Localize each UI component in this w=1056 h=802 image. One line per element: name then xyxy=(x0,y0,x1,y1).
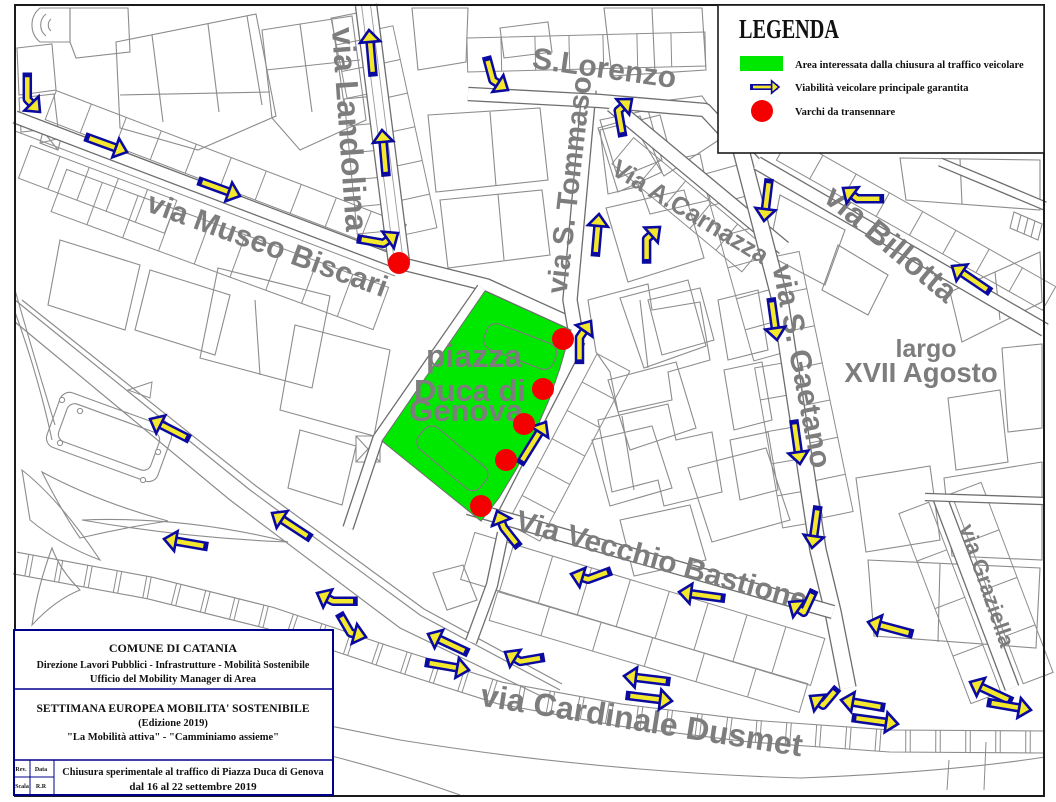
svg-text:Rev.: Rev. xyxy=(15,767,27,773)
svg-text:Varchi da transennare: Varchi da transennare xyxy=(795,107,895,118)
svg-text:Ufficio del Mobility Manager d: Ufficio del Mobility Manager di Area xyxy=(90,674,257,685)
svg-text:(Edizione 2019): (Edizione 2019) xyxy=(138,718,208,729)
svg-text:Data: Data xyxy=(35,767,47,773)
svg-text:piazza: piazza xyxy=(426,338,522,374)
svg-text:XVII Agosto: XVII Agosto xyxy=(844,357,997,388)
svg-text:Area interessata dalla chiusur: Area interessata dalla chiusura al traff… xyxy=(795,60,1024,71)
svg-text:LEGENDA: LEGENDA xyxy=(739,14,839,44)
svg-text:"La Mobilità attiva" - "Cammin: "La Mobilità attiva" - "Camminiamo assie… xyxy=(67,732,279,743)
svg-text:Genova: Genova xyxy=(409,393,523,428)
svg-text:dal 16 al 22 settembre 2019: dal 16 al 22 settembre 2019 xyxy=(129,781,257,793)
svg-text:Direzione Lavori Pubblici - In: Direzione Lavori Pubblici - Infrastruttu… xyxy=(37,660,310,671)
svg-text:Viabilità veicolare principale: Viabilità veicolare principale garantita xyxy=(795,83,969,94)
svg-text:R.R: R.R xyxy=(36,784,47,790)
svg-text:COMUNE DI CATANIA: COMUNE DI CATANIA xyxy=(109,641,238,655)
svg-text:SETTIMANA EUROPEA MOBILITA' SO: SETTIMANA EUROPEA MOBILITA' SOSTENIBILE xyxy=(37,703,310,715)
svg-text:Scala: Scala xyxy=(15,784,29,790)
svg-text:Chiusura sperimentale al traff: Chiusura sperimentale al traffico di Pia… xyxy=(62,767,323,778)
